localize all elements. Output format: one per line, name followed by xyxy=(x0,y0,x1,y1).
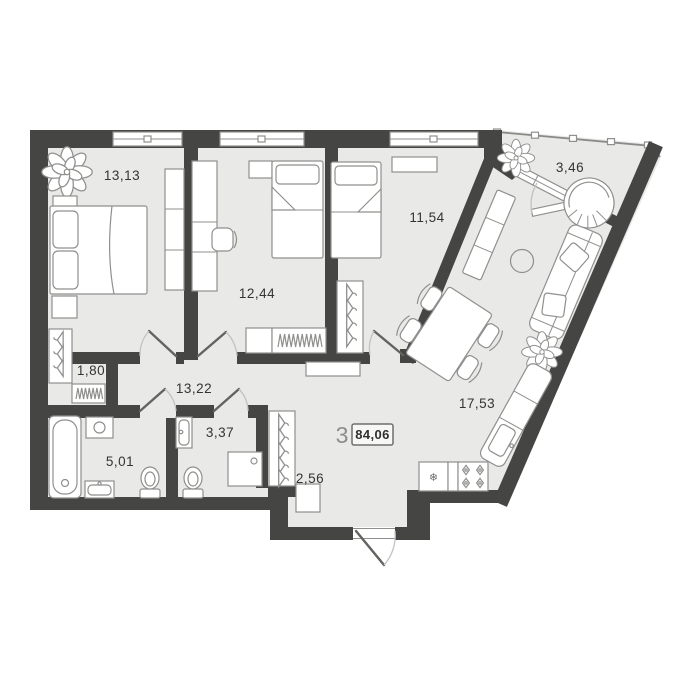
room-label-bathroom: 5,01 xyxy=(106,454,134,469)
entrance-door xyxy=(353,527,395,565)
wardrobe-rack xyxy=(246,328,326,353)
rooms-count: 3 xyxy=(336,422,349,448)
stove xyxy=(458,462,488,491)
counter-segment xyxy=(448,462,458,491)
room-label-wc: 3,37 xyxy=(206,425,234,440)
total-area: 84,06 xyxy=(355,427,390,442)
room-label-bedroom-2: 12,44 xyxy=(239,286,275,301)
nightstand xyxy=(52,296,77,318)
toilet xyxy=(183,467,203,498)
shower-tray xyxy=(228,452,262,486)
room-label-bedroom-1: 13,13 xyxy=(104,168,140,183)
room-label-balcony: 3,46 xyxy=(556,160,584,175)
fridge-icon: ❄ xyxy=(429,472,438,484)
floor-plan-svg: ❄ xyxy=(0,0,700,700)
sink xyxy=(176,417,192,448)
floor-plan: ❄ xyxy=(0,0,700,700)
plant-icon xyxy=(42,147,92,197)
window-bedroom-1 xyxy=(113,132,182,146)
wardrobe xyxy=(165,169,184,290)
hanger-rack xyxy=(269,411,295,487)
toilet xyxy=(140,467,160,498)
desk-chair xyxy=(212,228,237,251)
nightstand xyxy=(249,161,272,178)
window-bedroom-3 xyxy=(390,132,478,146)
shelf-rack xyxy=(72,384,105,403)
single-bed xyxy=(331,162,381,258)
room-label-kitchen-living: 17,53 xyxy=(459,396,495,411)
plant-icon xyxy=(497,139,534,176)
window-bedroom-2 xyxy=(220,132,304,146)
room-label-wardrobe-niche: 1,80 xyxy=(77,363,105,378)
window-bench xyxy=(392,157,437,172)
hall-cabinet xyxy=(306,362,360,376)
fridge: ❄ xyxy=(419,462,448,491)
room-label-bedroom-3: 11,54 xyxy=(409,210,444,225)
open-wardrobe xyxy=(337,281,363,353)
shoe-cabinet xyxy=(296,484,320,512)
single-bed xyxy=(272,161,323,258)
room-label-closet: 2,56 xyxy=(296,471,324,486)
plan-summary: 3 84,06 xyxy=(336,422,393,448)
desk-cabinet xyxy=(192,161,217,291)
room-label-hallway: 13,22 xyxy=(176,381,212,396)
double-bed xyxy=(50,206,147,294)
hanger-rack xyxy=(49,329,72,383)
washing-machine xyxy=(86,417,113,438)
sink xyxy=(85,481,114,498)
bathtub xyxy=(49,416,81,498)
